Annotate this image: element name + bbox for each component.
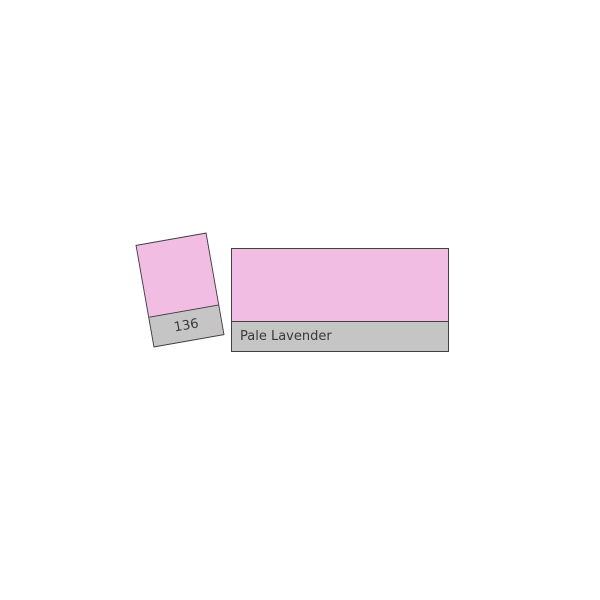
filter-number-label: 136: [173, 316, 200, 335]
swatch-color-area-small: [137, 234, 219, 318]
swatch-name-band: Pale Lavender: [232, 322, 448, 351]
filter-name-label: Pale Lavender: [240, 329, 332, 344]
filter-swatch-bar-large: Pale Lavender: [231, 248, 449, 352]
filter-swatch-card-small: 136: [136, 233, 225, 348]
swatch-color-area-large: [232, 249, 448, 322]
product-image: 136 Pale Lavender: [0, 0, 600, 600]
